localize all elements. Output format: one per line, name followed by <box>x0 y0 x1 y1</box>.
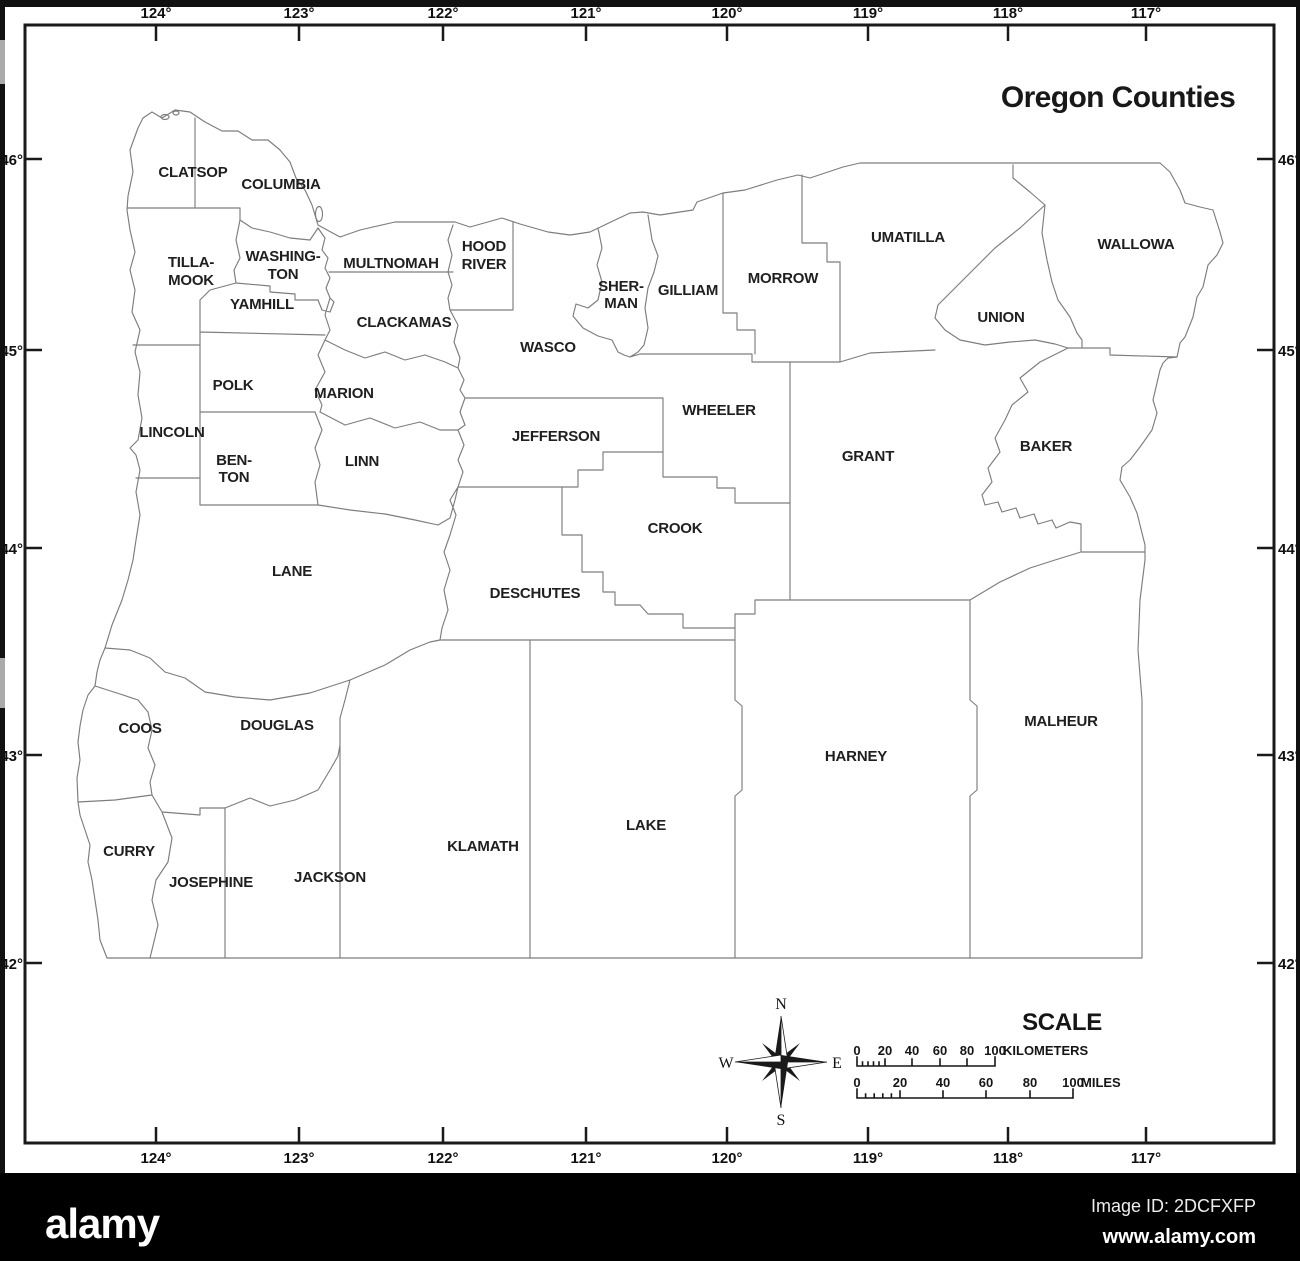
island <box>161 115 169 120</box>
county-label: COOS <box>118 720 162 737</box>
scale-mile-tick-label: 80 <box>1023 1075 1037 1090</box>
axis-label: 117° <box>1131 5 1161 22</box>
compass-south-label: S <box>777 1112 786 1129</box>
axis-label: 122° <box>427 1150 458 1167</box>
county-label: POLK <box>213 377 254 394</box>
county-label: TILLA- <box>168 254 214 271</box>
county-label: YAMHILL <box>230 296 294 313</box>
axis-label: 46° <box>1278 152 1300 169</box>
map-frame <box>25 25 1274 1143</box>
county-label: WALLOWA <box>1098 236 1175 253</box>
axis-label: 119° <box>853 1150 883 1167</box>
scale-mile-tick-label: 60 <box>979 1075 993 1090</box>
axis-label: 44° <box>0 541 23 558</box>
county-labels: CLATSOP COLUMBIA TILLA- MOOK WASHING- TO… <box>103 164 1175 891</box>
county-label: MULTNOMAH <box>343 255 438 272</box>
axis-label: 121° <box>570 1150 601 1167</box>
county-label: GILLIAM <box>658 282 718 299</box>
county-label: MAN <box>604 295 638 312</box>
county-label: DOUGLAS <box>240 717 314 734</box>
scale-km-tick-label: 0 <box>853 1043 860 1058</box>
scale-bar-km <box>857 1057 995 1066</box>
compass-north-label: N <box>775 996 787 1013</box>
axis-label: 43° <box>1278 748 1300 765</box>
county-label: BEN- <box>216 452 252 469</box>
county-label: WASHING- <box>245 248 320 265</box>
island <box>316 207 323 222</box>
county-label: LANE <box>272 563 312 580</box>
compass-west-label: W <box>718 1055 734 1072</box>
county-label: SHER- <box>598 278 644 295</box>
oregon-counties-map: 124° 123° 122° 121° 120° 119° 118° 117° … <box>0 0 1300 1261</box>
compass-point-w-light <box>735 1055 781 1062</box>
compass-east-label: E <box>832 1055 842 1072</box>
county-label: JOSEPHINE <box>169 874 253 891</box>
axis-label: 45° <box>1278 343 1300 360</box>
county-label: LINN <box>345 453 379 470</box>
scale-mile-tick-label: 40 <box>936 1075 950 1090</box>
axis-label: 120° <box>711 1150 742 1167</box>
right-axis-ticks <box>1257 159 1274 963</box>
county-label: TON <box>219 469 250 486</box>
axis-label: 45° <box>0 343 23 360</box>
scale-block: SCALE 0 20 40 60 80 100 KILOMETERS 0 20 … <box>853 1009 1121 1098</box>
scale-mile-unit: MILES <box>1081 1075 1121 1090</box>
scale-mile-tick-label: 20 <box>893 1075 907 1090</box>
county-label: CLACKAMAS <box>357 314 452 331</box>
image-left-edge <box>0 0 5 1261</box>
county-label: MALHEUR <box>1024 713 1098 730</box>
county-label: LINCOLN <box>139 424 204 441</box>
image-right-edge <box>1296 0 1300 1261</box>
axis-label: 117° <box>1131 1150 1161 1167</box>
county-label: UNION <box>977 309 1024 326</box>
county-label: GRANT <box>842 448 894 465</box>
compass-point-n-light <box>781 1016 788 1062</box>
county-label: MARION <box>314 385 374 402</box>
county-label: DESCHUTES <box>490 585 581 602</box>
county-label: MORROW <box>748 270 819 287</box>
axis-label: 122° <box>427 5 458 22</box>
axis-label: 118° <box>993 1150 1023 1167</box>
island <box>173 111 179 115</box>
compass-point-e-light <box>781 1062 827 1069</box>
bottom-axis-ticks <box>156 1127 1146 1143</box>
county-label: TON <box>268 266 299 283</box>
brand-logo: alamy <box>45 1200 161 1247</box>
axis-label: 42° <box>1278 956 1300 973</box>
axis-label: 42° <box>0 956 23 973</box>
county-label: RIVER <box>462 256 507 273</box>
compass-rose: N S W E <box>718 996 841 1129</box>
axis-label: 43° <box>0 748 23 765</box>
axis-label: 118° <box>993 5 1023 22</box>
county-label: UMATILLA <box>871 229 945 246</box>
county-label: HOOD <box>462 238 507 255</box>
stock-map-image: 124° 123° 122° 121° 120° 119° 118° 117° … <box>0 0 1300 1261</box>
compass-point-w-dark <box>735 1062 781 1069</box>
scale-heading: SCALE <box>1022 1009 1102 1036</box>
website-url-text: www.alamy.com <box>1102 1226 1256 1248</box>
top-axis-ticks <box>156 25 1146 41</box>
top-axis-labels: 124° 123° 122° 121° 120° 119° 118° 117° <box>140 5 1161 22</box>
edge-watermark-artifact <box>0 658 5 708</box>
scale-km-tick-label: 20 <box>878 1043 892 1058</box>
image-top-edge <box>0 0 1300 7</box>
county-label: BAKER <box>1020 438 1073 455</box>
county-label: MOOK <box>168 272 214 289</box>
axis-label: 123° <box>283 1150 314 1167</box>
footer-bar: alamy Image ID: 2DCFXFP www.alamy.com <box>0 1173 1300 1261</box>
axis-label: 124° <box>140 5 171 22</box>
axis-label: 120° <box>711 5 742 22</box>
county-label: HARNEY <box>825 748 887 765</box>
scale-km-tick-label: 80 <box>960 1043 974 1058</box>
county-label: JEFFERSON <box>512 428 600 445</box>
county-label: WASCO <box>520 339 576 356</box>
compass-point-e-dark <box>781 1055 827 1062</box>
county-label: WHEELER <box>682 402 756 419</box>
axis-label: 121° <box>570 5 601 22</box>
county-label: JACKSON <box>294 869 366 886</box>
axis-label: 124° <box>140 1150 171 1167</box>
county-label: KLAMATH <box>447 838 519 855</box>
county-label: COLUMBIA <box>241 176 321 193</box>
axis-label: 123° <box>283 5 314 22</box>
scale-km-tick-label: 40 <box>905 1043 919 1058</box>
scale-km-unit: KILOMETERS <box>1003 1043 1089 1058</box>
scale-km-tick-label: 60 <box>933 1043 947 1058</box>
scale-bar-miles <box>857 1089 1073 1098</box>
county-label: LAKE <box>626 817 666 834</box>
county-label: CLATSOP <box>158 164 227 181</box>
bottom-axis-labels: 124° 123° 122° 121° 120° 119° 118° 117° <box>140 1150 1161 1167</box>
axis-label: 119° <box>853 5 883 22</box>
county-label: CURRY <box>103 843 155 860</box>
axis-label: 46° <box>0 152 23 169</box>
image-id-text: Image ID: 2DCFXFP <box>1091 1196 1256 1216</box>
scale-mile-tick-label: 0 <box>853 1075 860 1090</box>
compass-point-s-light <box>774 1062 781 1108</box>
edge-watermark-artifact <box>0 40 5 84</box>
left-axis-ticks <box>25 159 42 963</box>
page-title: Oregon Counties <box>1001 81 1235 114</box>
axis-label: 44° <box>1278 541 1300 558</box>
county-label: CROOK <box>648 520 703 537</box>
